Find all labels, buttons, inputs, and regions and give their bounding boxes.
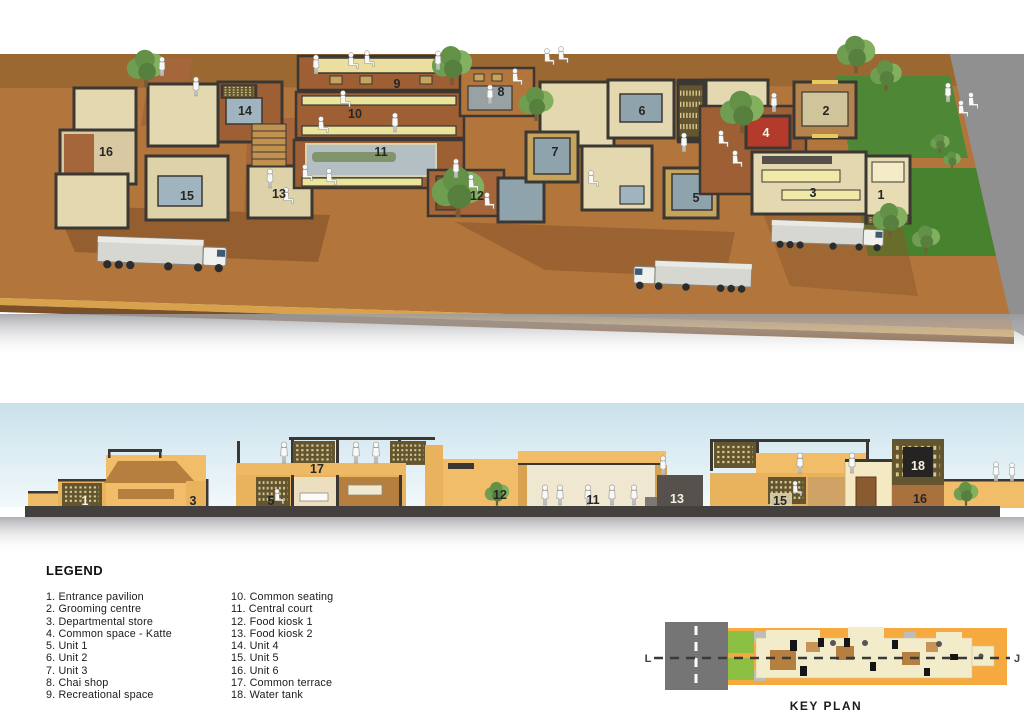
legend-item: 12. Food kiosk 1 bbox=[231, 616, 333, 628]
axon-marker-1: 1 bbox=[878, 188, 885, 202]
architectural-sheet: 1 2 3 4 5 6 7 8 9 10 11 12 13 14 15 16 bbox=[0, 0, 1024, 724]
legend-item: 14. Unit 4 bbox=[231, 640, 333, 652]
axon-marker-10: 10 bbox=[348, 107, 362, 121]
axonometric-view: 1 2 3 4 5 6 7 8 9 10 11 12 13 14 15 16 bbox=[0, 0, 1024, 360]
legend-item: 16. Unit 6 bbox=[231, 665, 333, 677]
section-ground bbox=[25, 506, 1000, 517]
section-marker-18: 18 bbox=[911, 459, 925, 473]
legend-item: 5. Unit 1 bbox=[46, 640, 231, 652]
section-label-right: J bbox=[1014, 653, 1020, 665]
axon-marker-9: 9 bbox=[394, 77, 401, 91]
axon-marker-12: 12 bbox=[470, 189, 484, 203]
legend-item: 17. Common terrace bbox=[231, 677, 333, 689]
key-plan: L J KEY PLAN bbox=[640, 612, 1024, 720]
section-marker-15: 15 bbox=[773, 494, 787, 508]
legend-item: 15. Unit 5 bbox=[231, 652, 333, 664]
legend-column-left: 1. Entrance pavilion 2. Grooming centre … bbox=[46, 591, 231, 702]
legend-title: LEGEND bbox=[46, 563, 418, 578]
legend-item: 6. Unit 2 bbox=[46, 652, 231, 664]
legend-item: 13. Food kiosk 2 bbox=[231, 628, 333, 640]
key-plan-caption: KEY PLAN bbox=[790, 699, 862, 713]
section-marker-1: 1 bbox=[82, 494, 89, 508]
common-seating bbox=[296, 92, 464, 138]
legend-item: 18. Water tank bbox=[231, 689, 333, 701]
axon-marker-6: 6 bbox=[639, 104, 646, 118]
axon-marker-8: 8 bbox=[498, 85, 505, 99]
axon-marker-11: 11 bbox=[374, 145, 387, 159]
axon-marker-4: 4 bbox=[763, 126, 770, 140]
section-marker-5: 5 bbox=[268, 494, 275, 508]
key-plan-graphic: L J bbox=[645, 622, 1020, 690]
key-plan-buildings bbox=[756, 627, 994, 678]
legend-item: 8. Chai shop bbox=[46, 677, 231, 689]
legend-item: 4. Common space - Katte bbox=[46, 628, 231, 640]
axon-marker-14: 14 bbox=[238, 104, 252, 118]
section-marker-17: 17 bbox=[310, 462, 324, 476]
section-marker-12: 12 bbox=[493, 488, 507, 502]
section-view: 1 3 5 17 12 11 13 15 18 16 bbox=[0, 393, 1024, 555]
axon-marker-2: 2 bbox=[823, 104, 830, 118]
axon-marker-5: 5 bbox=[693, 191, 700, 205]
legend-item: 2. Grooming centre bbox=[46, 603, 231, 615]
legend-item: 10. Common seating bbox=[231, 591, 333, 603]
legend: LEGEND 1. Entrance pavilion 2. Grooming … bbox=[46, 563, 418, 702]
legend-column-right: 10. Common seating 11. Central court 12.… bbox=[231, 591, 333, 702]
axon-marker-7: 7 bbox=[552, 145, 559, 159]
axon-marker-16: 16 bbox=[99, 145, 113, 159]
legend-item: 3. Departmental store bbox=[46, 616, 231, 628]
axon-marker-3: 3 bbox=[810, 186, 817, 200]
legend-item: 1. Entrance pavilion bbox=[46, 591, 231, 603]
departmental-store bbox=[752, 152, 866, 214]
section-marker-16: 16 bbox=[913, 492, 927, 506]
axon-marker-15: 15 bbox=[180, 189, 194, 203]
legend-item: 7. Unit 3 bbox=[46, 665, 231, 677]
legend-item: 11. Central court bbox=[231, 603, 333, 615]
section-marker-11: 11 bbox=[586, 493, 599, 507]
axon-marker-13: 13 bbox=[272, 187, 286, 201]
section-label-left: L bbox=[645, 653, 652, 665]
section-marker-3: 3 bbox=[190, 494, 197, 508]
legend-item: 9. Recreational space bbox=[46, 689, 231, 701]
section-marker-13: 13 bbox=[670, 492, 684, 506]
